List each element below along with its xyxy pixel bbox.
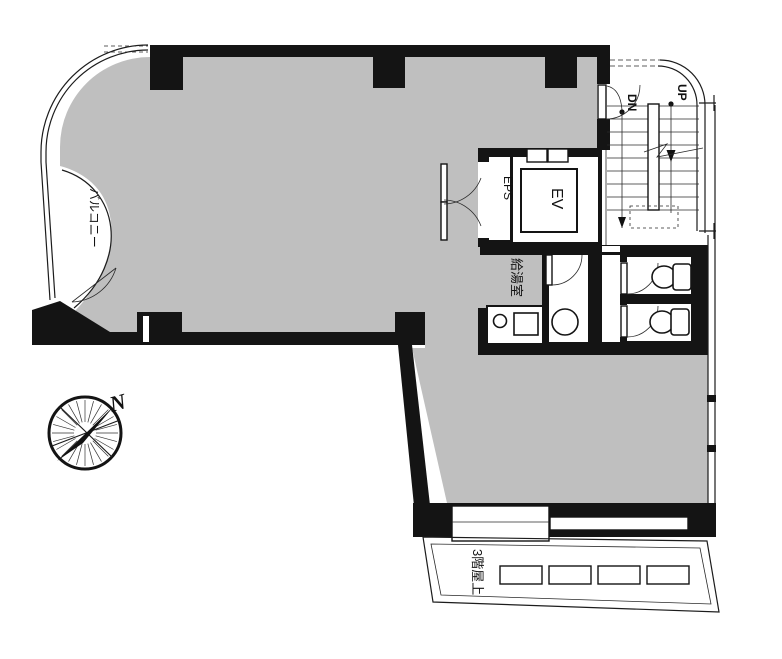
compass-tick	[62, 410, 78, 426]
kitchenette-label: 給湯室	[509, 258, 524, 297]
lower-room-south	[413, 503, 716, 541]
rooftop-equipment-unit	[598, 566, 640, 584]
elevator-door-slot-right	[548, 149, 568, 162]
stall-2-door-leaf	[621, 306, 627, 337]
compass-tick	[93, 410, 109, 426]
stairwell: UP DN	[598, 60, 716, 245]
lower-room-floor	[412, 348, 708, 503]
north-label: N	[106, 388, 130, 417]
left-skin-line-2	[46, 152, 55, 298]
compass-rose: N	[49, 388, 130, 469]
compass-chord-2	[60, 407, 112, 457]
lobby-door-opening	[478, 162, 490, 238]
elevator-label: EV	[548, 188, 565, 210]
floor-plan: バルコニー	[0, 0, 782, 659]
elevator-door-slot-left	[527, 149, 547, 162]
rooftop-equipment-unit	[549, 566, 591, 584]
east-skin	[707, 105, 716, 503]
eps-label: EPS	[501, 176, 515, 200]
south-hatch	[452, 506, 549, 541]
compass-needle-icon	[57, 406, 114, 461]
stall-1-door-leaf	[621, 263, 627, 294]
lobby-door-leaf-top	[441, 164, 447, 202]
washroom-east-wall	[588, 252, 602, 342]
east-mullion-1	[707, 395, 716, 402]
washroom-door-leaf	[546, 255, 552, 285]
washroom-basin-icon	[552, 309, 578, 335]
stair-entry-door-leaf	[598, 85, 606, 119]
column-bottom-2	[395, 312, 425, 345]
rooftop-equipment-unit	[500, 566, 542, 584]
column-top-2	[373, 45, 405, 88]
toilet-1-tank-icon	[673, 264, 691, 290]
column-top-3	[545, 45, 577, 88]
toilet-2-tank-icon	[671, 309, 689, 335]
compass-tick	[93, 441, 109, 457]
south-window-strip	[550, 517, 688, 530]
rooftop-area: 3階屋上	[423, 537, 719, 612]
lobby-door-leaf-bottom	[441, 202, 447, 240]
rooftop-label: 3階屋上	[470, 549, 485, 595]
column-top-1	[150, 45, 183, 90]
kitchen-sink-icon	[494, 315, 507, 328]
rooftop-equipment-unit	[647, 566, 689, 584]
up-arrow-head	[667, 150, 676, 162]
column-bottom-1-slit	[143, 316, 149, 342]
rooftop-equipment-row	[500, 566, 689, 584]
dn-label: DN	[625, 94, 639, 111]
toilet-corridor	[602, 255, 620, 342]
east-mullion-2	[707, 445, 716, 452]
balcony-label: バルコニー	[87, 188, 101, 248]
left-skin-line-1	[41, 152, 50, 300]
up-label: UP	[675, 84, 689, 101]
kitchen-appliance-icon	[514, 313, 538, 335]
floor-plan-drawing: バルコニー	[0, 0, 782, 659]
dn-arrow-head	[618, 217, 626, 228]
stair-wall-upper	[597, 57, 610, 84]
